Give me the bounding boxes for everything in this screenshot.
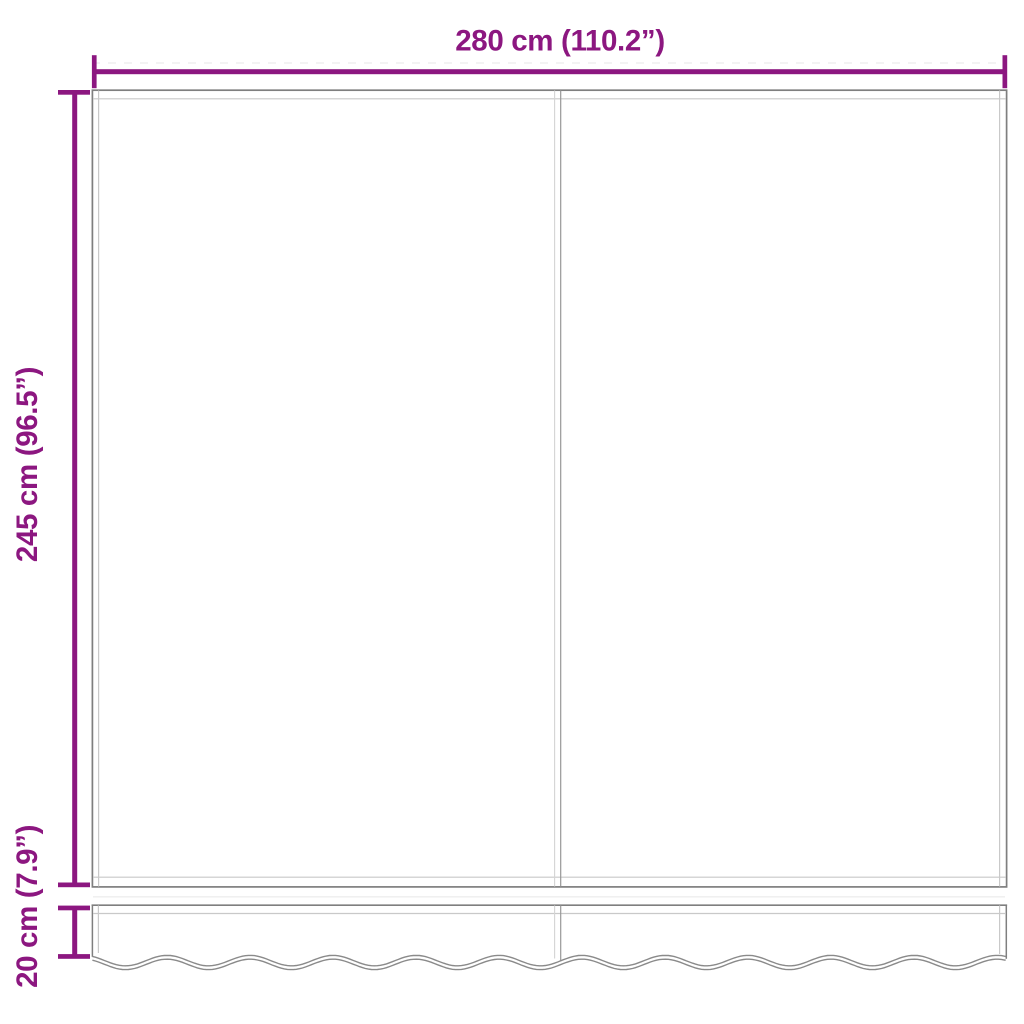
svg-text:280 cm (110.2”): 280 cm (110.2”): [455, 25, 665, 58]
svg-text:20 cm (7.9”): 20 cm (7.9”): [11, 825, 44, 988]
svg-text:245 cm (96.5”): 245 cm (96.5”): [11, 367, 44, 562]
